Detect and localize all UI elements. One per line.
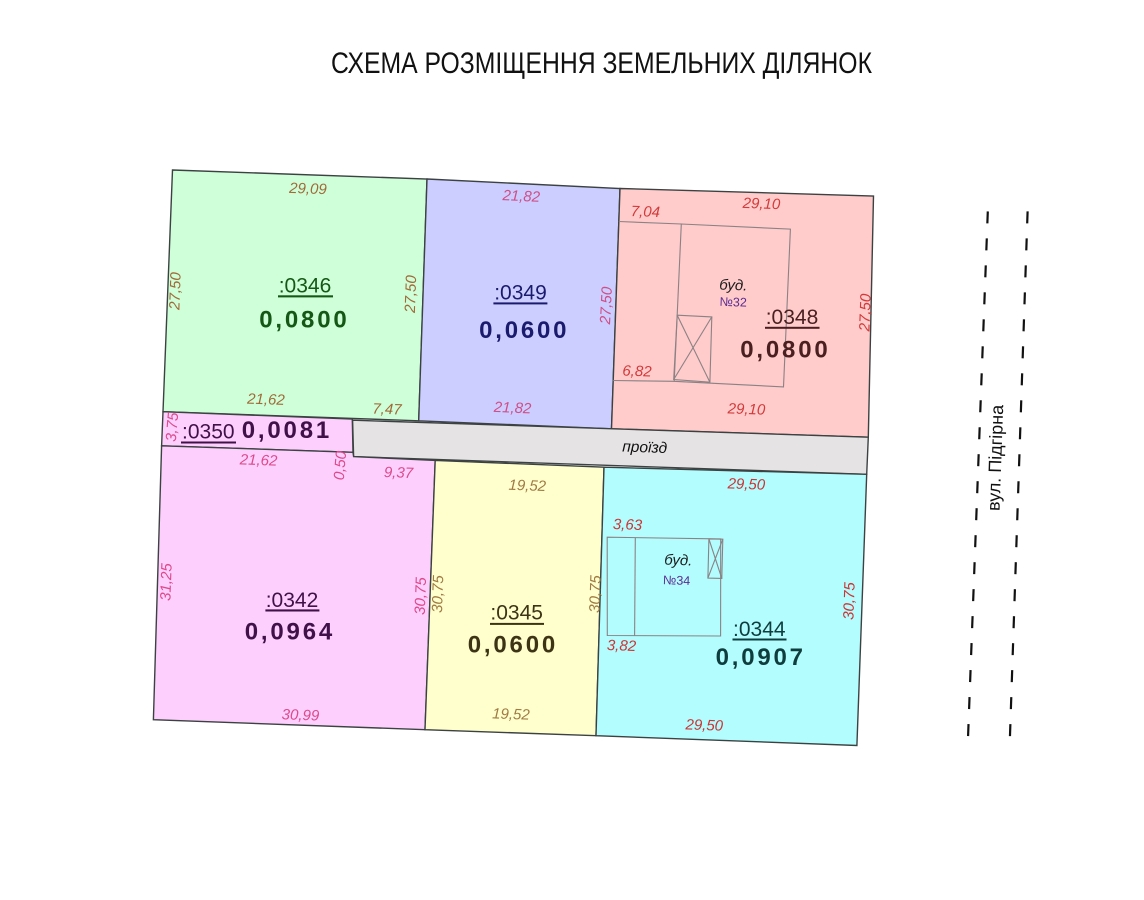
- svg-text:30,99: 30,99: [281, 706, 320, 724]
- svg-text:21,62: 21,62: [239, 451, 279, 469]
- svg-text:19,52: 19,52: [492, 705, 531, 723]
- svg-text:0,50: 0,50: [331, 450, 351, 481]
- svg-text:№34: №34: [663, 573, 691, 588]
- svg-text::0345: :0345: [490, 601, 543, 624]
- svg-text:27,50: 27,50: [166, 271, 184, 311]
- svg-text:29,09: 29,09: [288, 180, 328, 198]
- svg-text::0346: :0346: [279, 275, 332, 298]
- svg-text::0349: :0349: [494, 281, 547, 304]
- svg-text:0,0907: 0,0907: [716, 644, 806, 671]
- svg-text:21,82: 21,82: [492, 399, 532, 418]
- svg-text::0344: :0344: [733, 618, 786, 641]
- svg-text:21,82: 21,82: [501, 187, 541, 206]
- svg-text:19,52: 19,52: [508, 477, 547, 495]
- svg-text:0,0600: 0,0600: [479, 317, 569, 344]
- svg-text:29,50: 29,50: [726, 475, 766, 493]
- svg-text:0,0800: 0,0800: [259, 306, 349, 333]
- svg-text:29,10: 29,10: [741, 195, 781, 213]
- svg-text:27,50: 27,50: [856, 293, 874, 333]
- svg-text:30,75: 30,75: [429, 574, 447, 613]
- svg-text::0348: :0348: [766, 306, 819, 329]
- svg-text:30,75: 30,75: [840, 581, 858, 620]
- svg-text:СХЕМА РОЗМІЩЕННЯ ЗЕМЕЛЬНИХ ДІЛ: СХЕМА РОЗМІЩЕННЯ ЗЕМЕЛЬНИХ ДІЛЯНОК: [331, 47, 872, 80]
- svg-text:вул. Підгірна: вул. Підгірна: [984, 403, 1008, 511]
- svg-text:29,10: 29,10: [726, 400, 766, 418]
- svg-text::0342: :0342: [266, 589, 319, 612]
- svg-text:0,0964: 0,0964: [245, 619, 335, 646]
- svg-text:7,04: 7,04: [630, 203, 660, 221]
- svg-text:3,63: 3,63: [613, 516, 643, 534]
- svg-text:0,0800: 0,0800: [740, 337, 830, 364]
- svg-text:0,0081: 0,0081: [242, 417, 332, 444]
- svg-text:21,62: 21,62: [246, 391, 286, 409]
- svg-text:6,82: 6,82: [622, 362, 652, 380]
- svg-text:буд.: буд.: [664, 552, 693, 570]
- svg-text:9,37: 9,37: [384, 464, 414, 482]
- svg-text:буд.: буд.: [719, 277, 748, 295]
- svg-text:3,75: 3,75: [163, 411, 183, 442]
- svg-text:29,50: 29,50: [684, 716, 724, 734]
- svg-text:30,75: 30,75: [586, 574, 604, 613]
- svg-text::0350: :0350: [182, 420, 235, 443]
- svg-text:0,0600: 0,0600: [468, 632, 558, 659]
- svg-text:№32: №32: [719, 295, 747, 310]
- svg-text:3,82: 3,82: [607, 637, 637, 655]
- svg-text:проїзд: проїзд: [622, 439, 668, 458]
- svg-text:31,25: 31,25: [157, 562, 175, 601]
- svg-text:27,50: 27,50: [597, 286, 616, 326]
- svg-text:27,50: 27,50: [402, 274, 420, 314]
- svg-text:30,75: 30,75: [412, 576, 430, 615]
- svg-text:7,47: 7,47: [372, 400, 402, 418]
